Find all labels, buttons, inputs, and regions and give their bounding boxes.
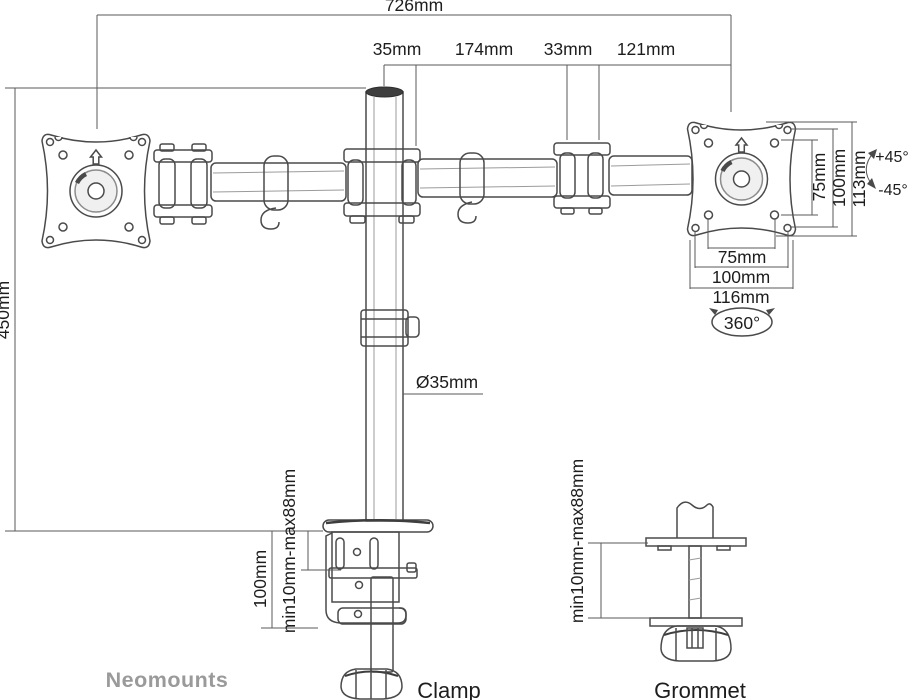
grommet-assembly: [646, 502, 746, 661]
annotation-rotation: 360°: [709, 308, 775, 336]
arm-tube-right: [609, 156, 692, 195]
cable-clip-left: [261, 156, 288, 229]
pole: [361, 87, 419, 521]
dim-label-v100: 100mm: [829, 149, 849, 207]
dim-label-v75: 75mm: [809, 153, 829, 202]
caption-grommet: Grommet: [654, 678, 746, 700]
vesa-plate-right: [688, 122, 796, 235]
dim-pole-diameter: Ø35mm: [403, 372, 483, 394]
dim-label-h116: 116mm: [712, 287, 769, 307]
brand-logo: Neomounts: [106, 668, 229, 692]
dim-label-h100: 100mm: [712, 267, 770, 287]
clamp-knob: [341, 668, 402, 699]
dim-grommet: min10mm-max88mm: [567, 459, 653, 623]
dim-label-450mm: 450mm: [0, 281, 13, 339]
dim-label-121mm: 121mm: [617, 39, 675, 59]
pole-top-cap: [366, 87, 403, 97]
arm-tube-center: [418, 159, 557, 197]
dim-label-clamp-100mm: 100mm: [250, 550, 270, 608]
grommet-knob: [661, 626, 731, 661]
dim-label-h75: 75mm: [718, 247, 767, 267]
pole-collar: [361, 310, 419, 346]
drawing-svg: 726mm 35mm 174mm 33mm 121mm 450mm Ø35mm …: [0, 0, 909, 700]
annotation-tilt: +45° -45°: [866, 149, 909, 199]
dim-label-clamp-range: min10mm-max88mm: [279, 469, 299, 633]
arm-joint-center: [344, 149, 420, 223]
caption-clamp: Clamp: [417, 678, 481, 700]
dim-label-33mm: 33mm: [544, 39, 593, 59]
dim-label-v113: 113mm: [849, 150, 869, 207]
dim-label-tilt-down: -45°: [878, 182, 908, 199]
clamp-assembly: [323, 520, 433, 699]
vesa-plate-left: [42, 134, 150, 247]
dim-clamp: min10mm-max88mm 100mm: [250, 469, 341, 633]
dim-label-35mm: 35mm: [373, 39, 422, 59]
dim-label-diameter: Ø35mm: [416, 372, 478, 392]
technical-drawing-monitor-arm: 726mm 35mm 174mm 33mm 121mm 450mm Ø35mm …: [0, 0, 909, 700]
dim-label-174mm: 174mm: [455, 39, 513, 59]
dim-label-grommet-range: min10mm-max88mm: [567, 459, 587, 623]
dim-label-rotation: 360°: [724, 313, 760, 333]
dim-arm-segments: 35mm 174mm 33mm 121mm: [373, 39, 731, 146]
dim-label-726mm: 726mm: [385, 0, 443, 15]
arm-joint-right: [554, 143, 610, 214]
cable-clip-right: [458, 153, 484, 223]
dim-label-tilt-up: +45°: [875, 149, 909, 166]
arm-joint-left: [154, 144, 212, 224]
arm-tube-left: [211, 163, 346, 201]
